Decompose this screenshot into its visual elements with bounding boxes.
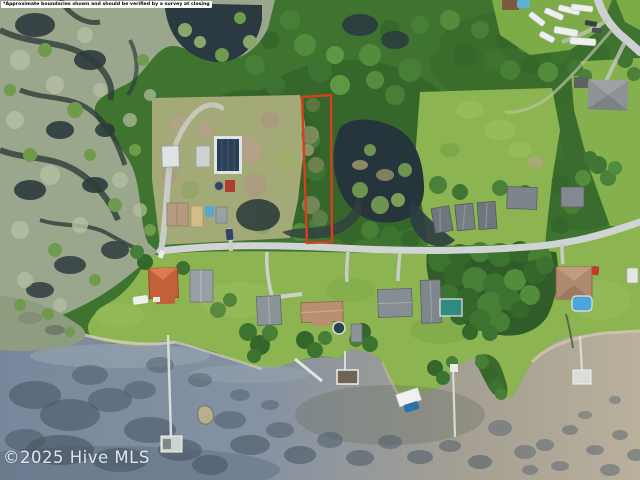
- boundary-disclaimer-label: *Approximate boundaries shown and should…: [1, 1, 212, 8]
- mls-watermark: ©2025 Hive MLS: [3, 448, 150, 467]
- aerial-listing-photo: *Approximate boundaries shown and should…: [0, 0, 640, 480]
- aerial-photo-canvas: [0, 0, 640, 480]
